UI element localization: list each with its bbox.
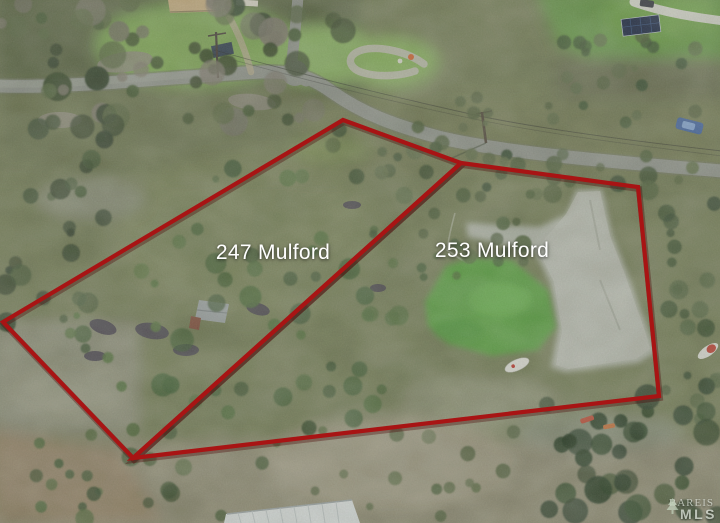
parcel-boundary-247 [3, 120, 461, 458]
parcel-boundary-253-shadow [134, 165, 660, 460]
aerial-photo: 247 Mulford 253 Mulford BAREIS MLS [0, 0, 720, 523]
parcel-boundary-247-shadow [4, 122, 462, 460]
parcel-boundary-253 [133, 163, 659, 458]
parcel-boundaries [0, 0, 720, 523]
